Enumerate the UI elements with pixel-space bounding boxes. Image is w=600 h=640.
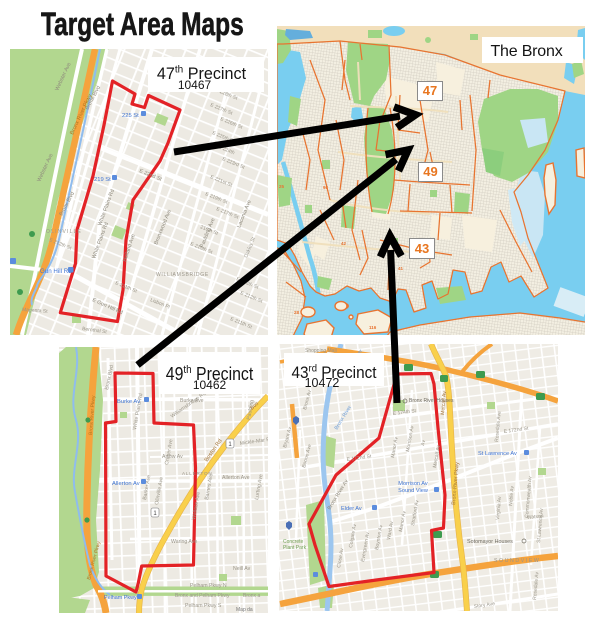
svg-text:Pelham Pkwy: Pelham Pkwy — [104, 595, 137, 601]
svg-text:Gun Hill Rd: Gun Hill Rd — [40, 268, 72, 275]
svg-text:116: 116 — [369, 325, 377, 330]
svg-text:Plant Park: Plant Park — [283, 545, 307, 551]
svg-text:Allerton Av: Allerton Av — [112, 481, 140, 487]
svg-text:Burke Av: Burke Av — [117, 399, 140, 405]
svg-text:Allerton Ave: Allerton Ave — [222, 475, 250, 481]
svg-text:St Lawrence Av: St Lawrence Av — [478, 451, 517, 457]
svg-text:WILLIAMSBRIDGE: WILLIAMSBRIDGE — [156, 272, 209, 278]
svg-text:SOUNDVIEW: SOUNDVIEW — [494, 558, 540, 564]
svg-text:Sotomayor Houses: Sotomayor Houses — [467, 539, 513, 545]
svg-text:25: 25 — [279, 184, 285, 189]
svg-text:Pelham Pkwy S: Pelham Pkwy S — [185, 603, 222, 609]
svg-text:Elder Av: Elder Av — [341, 506, 362, 512]
svg-text:Sound View: Sound View — [398, 488, 429, 494]
svg-text:98: 98 — [323, 185, 329, 190]
svg-text:Bronx a: Bronx a — [243, 593, 260, 599]
svg-text:41: 41 — [398, 266, 404, 271]
svg-text:Bronx and Pelham Pkwy: Bronx and Pelham Pkwy — [175, 593, 230, 599]
svg-text:219 St: 219 St — [94, 177, 111, 183]
svg-text:28: 28 — [294, 310, 300, 315]
svg-text:Waring Ave: Waring Ave — [171, 539, 197, 545]
svg-text:Morrison Av: Morrison Av — [398, 481, 428, 487]
svg-text:ALLERTON: ALLERTON — [182, 471, 213, 476]
svg-text:Neill Av: Neill Av — [233, 566, 251, 572]
svg-text:225 St: 225 St — [122, 113, 139, 119]
svg-text:OLINVILLE: OLINVILLE — [46, 229, 82, 235]
svg-text:42: 42 — [341, 241, 347, 246]
svg-text:Pelham Pkwy N: Pelham Pkwy N — [190, 583, 227, 589]
svg-text:Map da: Map da — [236, 607, 253, 613]
